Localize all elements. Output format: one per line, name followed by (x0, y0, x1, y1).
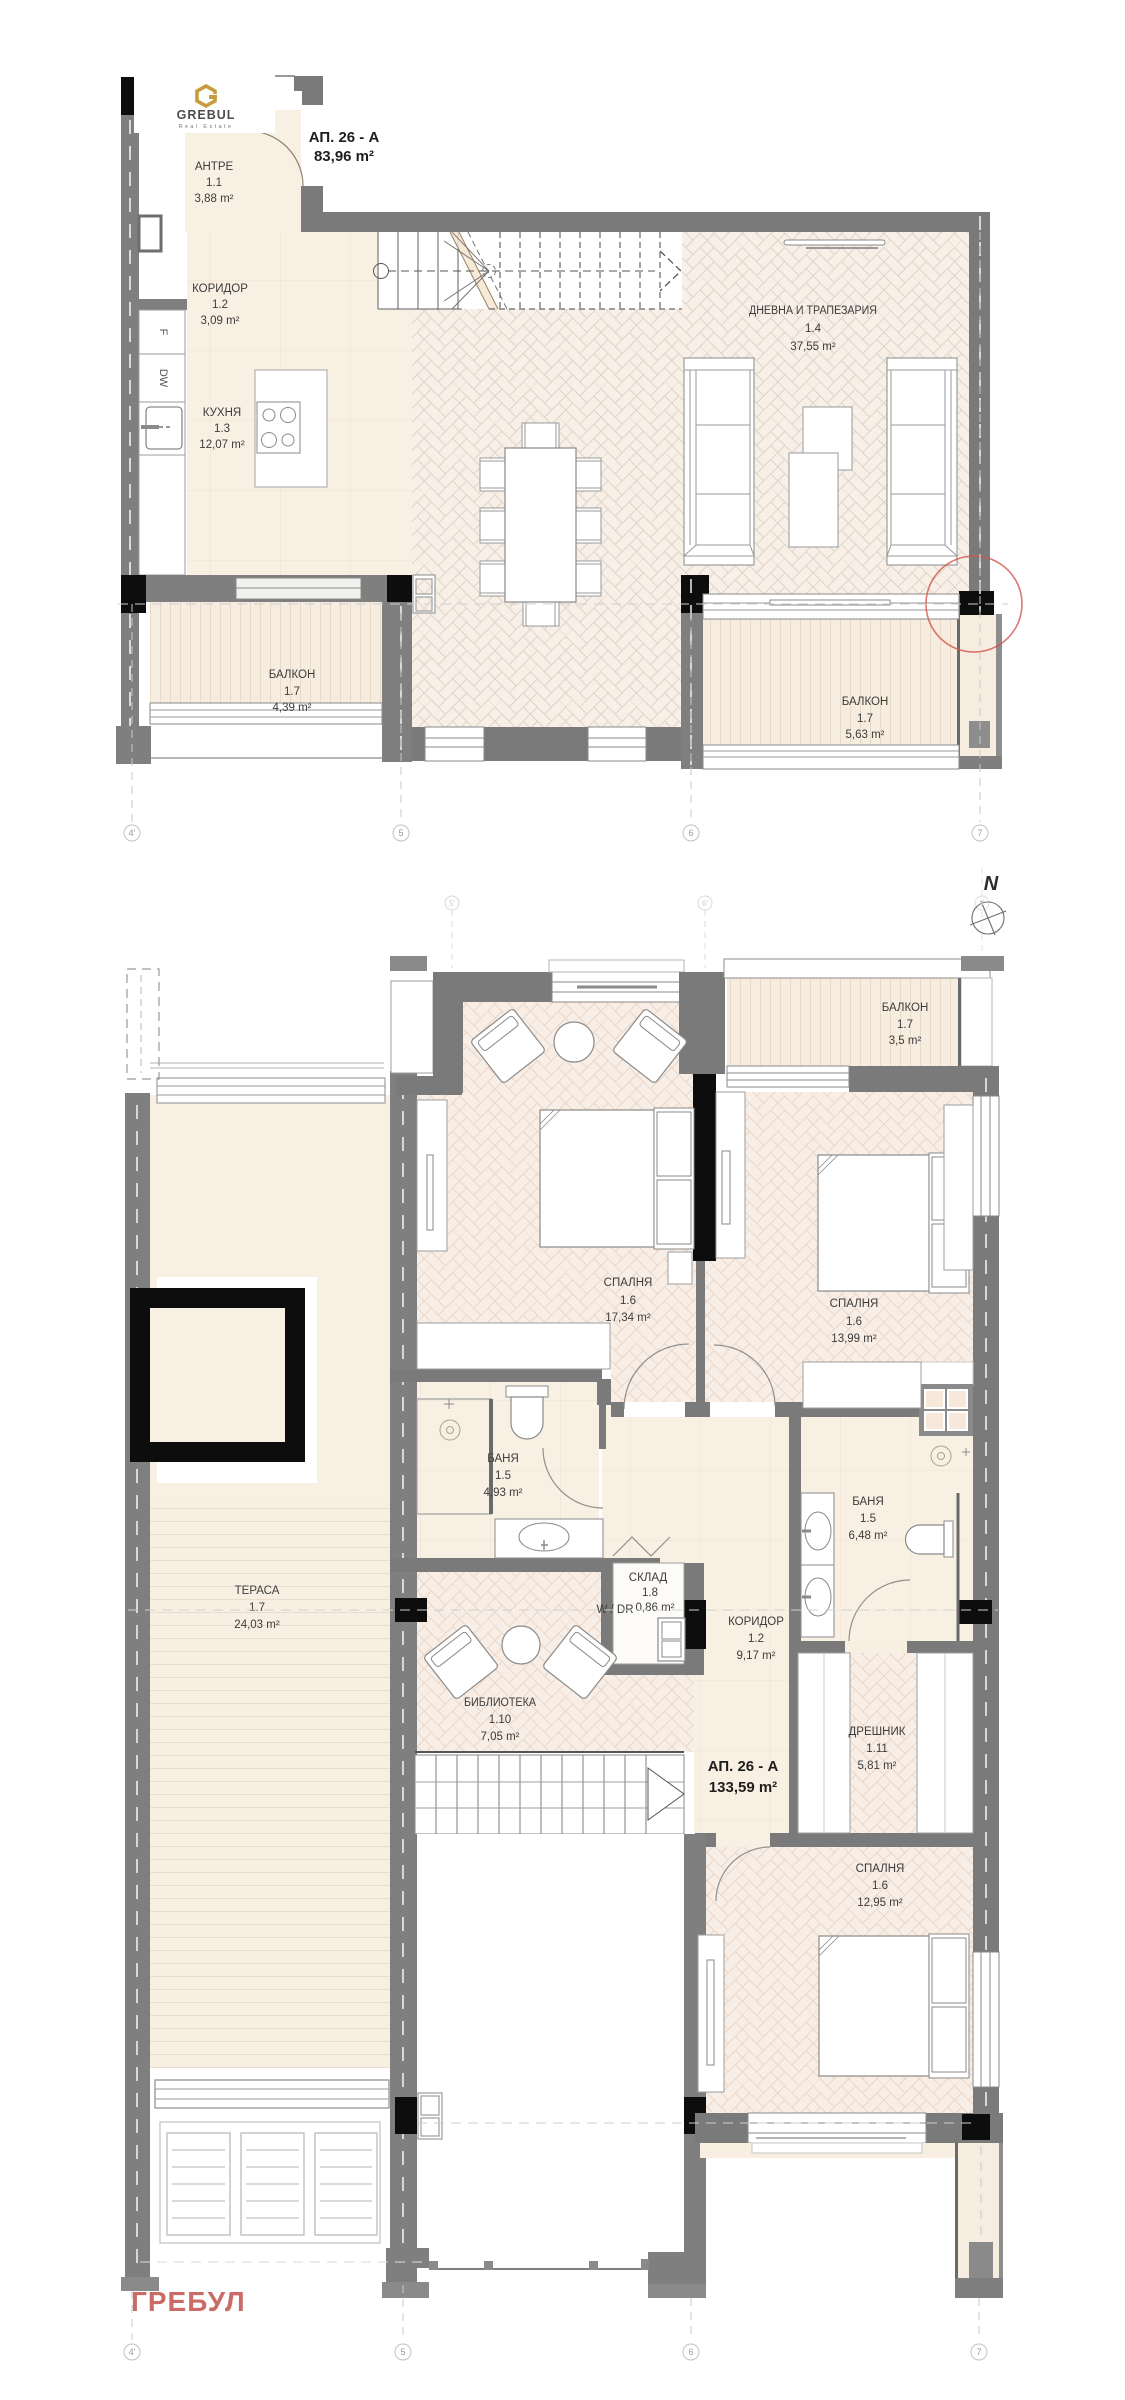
svg-text:КОРИДОР: КОРИДОР (728, 1616, 784, 1628)
svg-text:GREBUL: GREBUL (177, 108, 236, 122)
svg-text:5: 5 (398, 828, 403, 838)
svg-text:БАЛКОН: БАЛКОН (269, 669, 316, 681)
svg-text:0,86 m²: 0,86 m² (636, 1602, 675, 1614)
svg-text:6,48 m²: 6,48 m² (849, 1530, 888, 1542)
svg-text:9,17 m²: 9,17 m² (737, 1650, 776, 1662)
svg-text:1.7: 1.7 (857, 713, 873, 725)
svg-text:1.2: 1.2 (212, 299, 228, 311)
svg-text:1.7: 1.7 (249, 1602, 265, 1614)
svg-text:СКЛАД: СКЛАД (629, 1572, 668, 1584)
svg-text:1.6: 1.6 (620, 1295, 636, 1307)
svg-text:7: 7 (976, 2347, 981, 2357)
svg-text:ГРЕБУЛ: ГРЕБУЛ (131, 2286, 246, 2317)
svg-text:24,03 m²: 24,03 m² (234, 1619, 280, 1631)
svg-text:3,5 m²: 3,5 m² (889, 1035, 922, 1047)
svg-text:СПАЛНЯ: СПАЛНЯ (604, 1277, 653, 1289)
svg-text:5,81 m²: 5,81 m² (858, 1760, 897, 1772)
svg-text:DW: DW (157, 369, 169, 388)
svg-text:1.7: 1.7 (897, 1019, 913, 1031)
svg-text:АП. 26 - А: АП. 26 - А (309, 129, 380, 146)
svg-text:1.8: 1.8 (642, 1587, 658, 1599)
svg-text:АНТРЕ: АНТРЕ (195, 161, 234, 173)
svg-text:4,39 m²: 4,39 m² (273, 702, 312, 714)
svg-text:5,63 m²: 5,63 m² (846, 729, 885, 741)
svg-text:1.6: 1.6 (872, 1880, 888, 1892)
svg-text:4,93 m²: 4,93 m² (484, 1487, 523, 1499)
svg-text:3,88 m²: 3,88 m² (195, 193, 234, 205)
svg-text:БИБЛИОТЕКА: БИБЛИОТЕКА (464, 1697, 536, 1709)
svg-text:1.3: 1.3 (214, 423, 230, 435)
svg-text:N: N (984, 873, 999, 895)
svg-text:3,09 m²: 3,09 m² (201, 315, 240, 327)
svg-text:37,55 m²: 37,55 m² (790, 341, 836, 353)
svg-text:1.5: 1.5 (860, 1513, 876, 1525)
svg-text:БАЛКОН: БАЛКОН (882, 1002, 929, 1014)
svg-text:133,59 m²: 133,59 m² (709, 1779, 777, 1796)
svg-text:ТЕРАСА: ТЕРАСА (235, 1585, 280, 1597)
svg-text:83,96 m²: 83,96 m² (314, 148, 374, 165)
svg-text:АП. 26 - А: АП. 26 - А (708, 1758, 779, 1775)
svg-text:СПАЛНЯ: СПАЛНЯ (830, 1298, 879, 1310)
svg-text:6: 6 (688, 828, 693, 838)
svg-text:ДНЕВНА И ТРАПЕЗАРИЯ: ДНЕВНА И ТРАПЕЗАРИЯ (749, 305, 877, 317)
svg-text:4': 4' (129, 828, 136, 838)
svg-text:КОРИДОР: КОРИДОР (192, 283, 248, 295)
svg-text:КУХНЯ: КУХНЯ (203, 407, 241, 419)
svg-text:БАНЯ: БАНЯ (487, 1453, 519, 1465)
svg-text:1.5: 1.5 (495, 1470, 511, 1482)
svg-text:1.10: 1.10 (489, 1714, 511, 1726)
svg-text:5': 5' (449, 899, 455, 908)
svg-text:1.2: 1.2 (748, 1633, 764, 1645)
svg-text:1.6: 1.6 (846, 1316, 862, 1328)
svg-text:1.4: 1.4 (805, 323, 822, 335)
svg-text:ДРЕШНИК: ДРЕШНИК (849, 1726, 906, 1738)
svg-text:6: 6 (688, 2347, 693, 2357)
svg-text:1.11: 1.11 (866, 1743, 888, 1755)
svg-text:Real Estate: Real Estate (179, 124, 234, 130)
svg-text:4': 4' (129, 2347, 136, 2357)
svg-text:12,95 m²: 12,95 m² (857, 1897, 903, 1909)
svg-text:БАЛКОН: БАЛКОН (842, 696, 889, 708)
svg-text:12,07 m²: 12,07 m² (199, 439, 245, 451)
svg-text:13,99 m²: 13,99 m² (831, 1333, 877, 1345)
svg-text:СПАЛНЯ: СПАЛНЯ (856, 1863, 905, 1875)
svg-text:7,05 m²: 7,05 m² (481, 1731, 520, 1743)
svg-text:1.1: 1.1 (206, 177, 222, 189)
svg-text:F: F (157, 329, 169, 336)
svg-text:5: 5 (400, 2347, 405, 2357)
svg-text:17,34 m²: 17,34 m² (605, 1312, 651, 1324)
svg-text:7: 7 (977, 828, 982, 838)
svg-text:БАНЯ: БАНЯ (852, 1496, 884, 1508)
svg-text:1.7: 1.7 (284, 686, 300, 698)
svg-text:6': 6' (702, 899, 708, 908)
